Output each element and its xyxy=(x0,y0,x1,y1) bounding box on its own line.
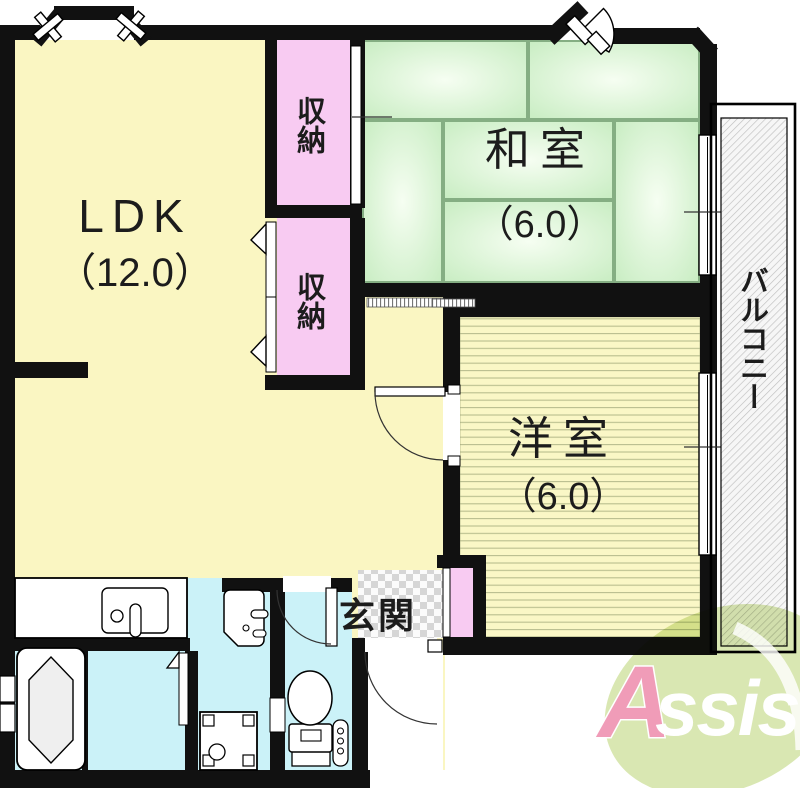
tatami-mat xyxy=(364,122,441,281)
label-storage-bottom: 収納 xyxy=(293,272,323,330)
exterior-patch xyxy=(368,650,443,772)
toilet-vent-window xyxy=(270,698,285,732)
label-western-room-size: （6.0） xyxy=(463,478,663,518)
faucet-icon xyxy=(130,604,141,637)
kitchen-counter xyxy=(15,578,187,638)
bathtub-icon xyxy=(17,648,85,770)
floorplan: A ssist LDK （12.0） 和室 （6.0） 洋室 （6.0） 収納 … xyxy=(0,0,800,788)
label-japanese-room-size: （6.0） xyxy=(440,206,640,246)
shoe-closet-door xyxy=(443,568,450,637)
washing-machine-icon xyxy=(200,712,257,770)
label-western-room: 洋室 xyxy=(483,415,643,462)
tatami-mat xyxy=(530,42,698,118)
washbasin-icon xyxy=(224,590,268,646)
tatami-mat xyxy=(364,42,526,118)
label-balcony: バルコニー xyxy=(736,266,766,411)
label-ldk: LDK xyxy=(60,192,210,240)
label-japanese-room: 和室 xyxy=(460,126,620,173)
label-ldk-size: （12.0） xyxy=(35,252,235,294)
tatami-mat xyxy=(616,122,698,281)
shoe-closet xyxy=(450,568,473,637)
label-entrance: 玄関 xyxy=(318,597,438,635)
bathroom-window xyxy=(0,704,15,732)
bathroom-window xyxy=(0,676,15,702)
sliding-door-western xyxy=(432,299,475,307)
label-storage-top: 収納 xyxy=(293,96,323,154)
logo-rest: ssist xyxy=(655,664,800,752)
floorplan-drawing: A ssist xyxy=(0,0,800,788)
